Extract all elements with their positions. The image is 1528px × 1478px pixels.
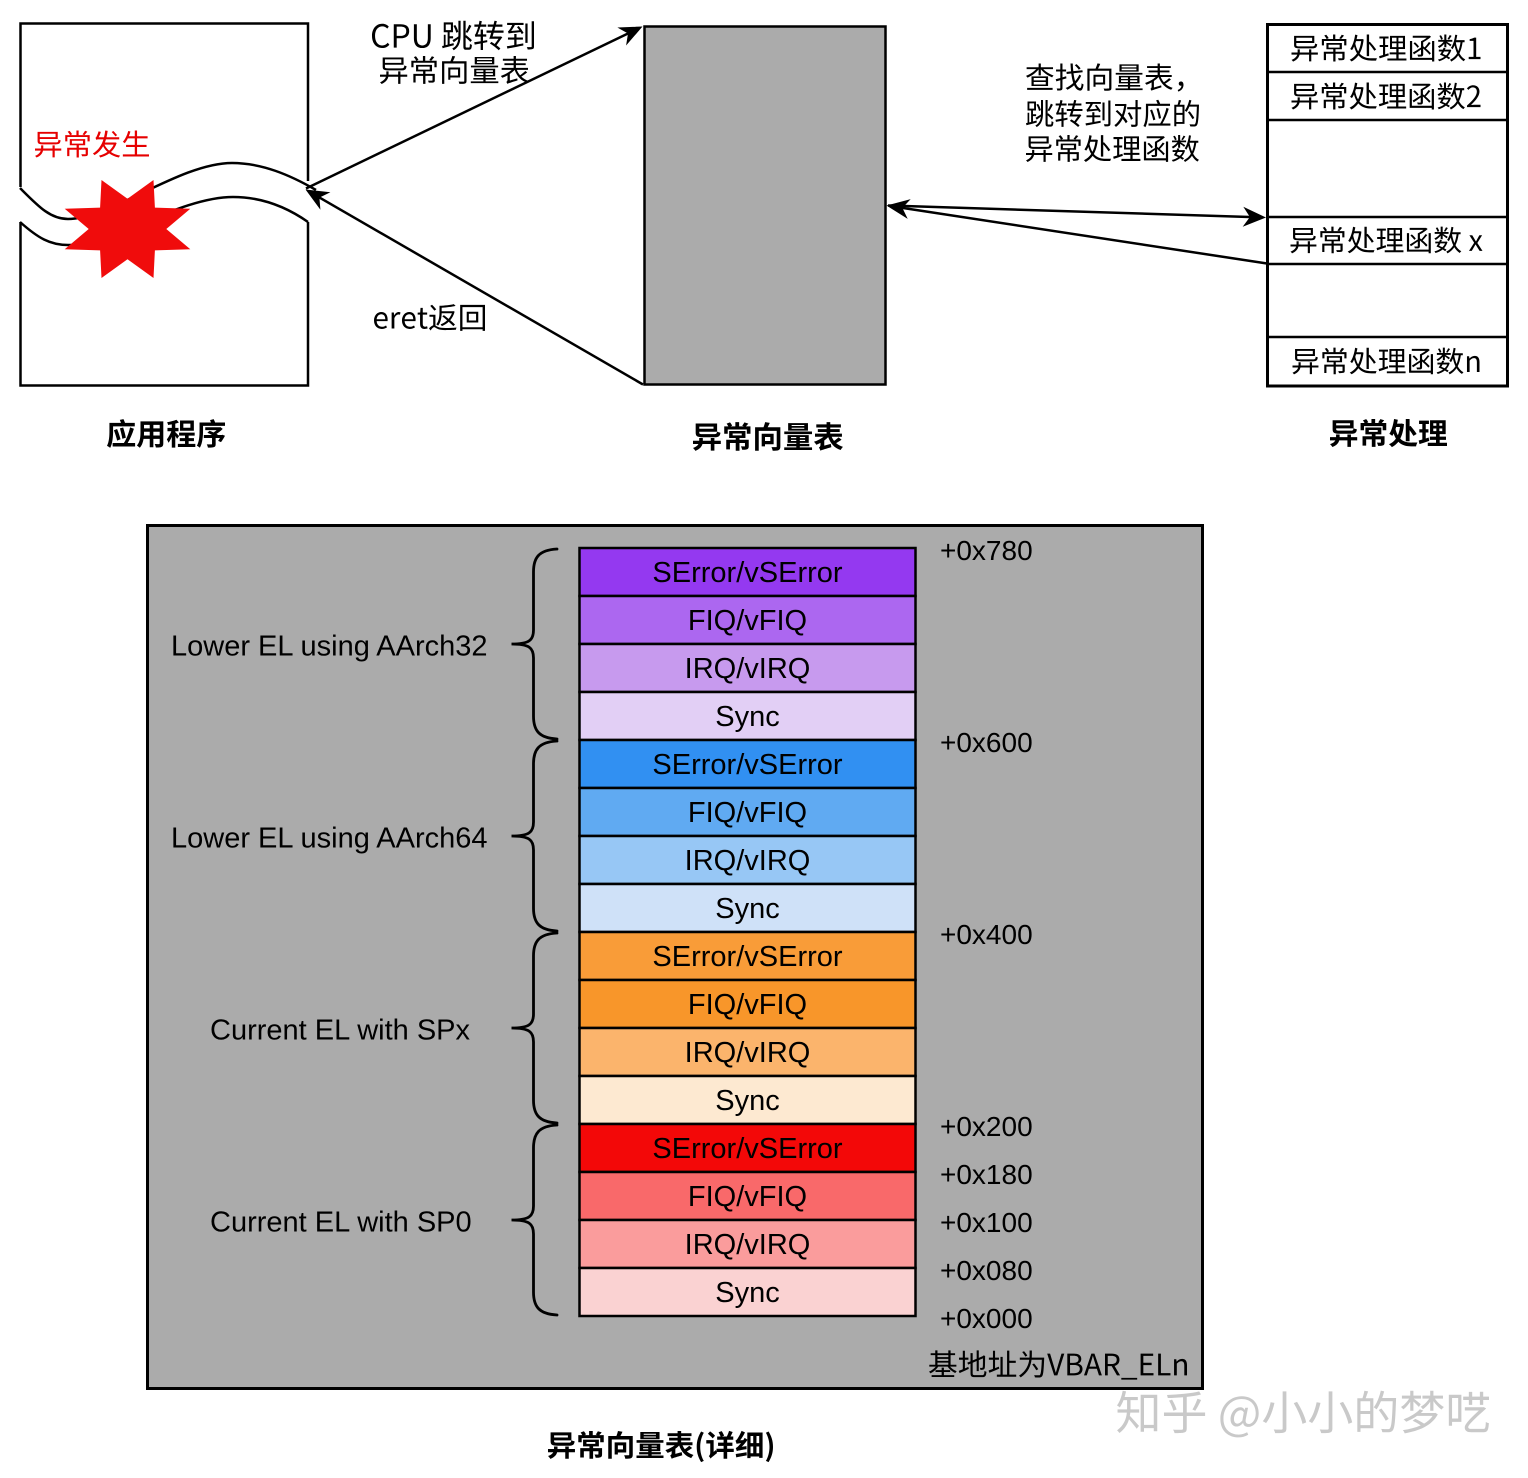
svg-text:+0x100: +0x100 [940, 1207, 1033, 1238]
svg-text:SError/vSError: SError/vSError [652, 557, 842, 589]
svg-text:+0x780: +0x780 [940, 535, 1033, 566]
svg-text:Lower EL using AArch32: Lower EL using AArch32 [171, 630, 488, 662]
svg-text:Sync: Sync [715, 1085, 779, 1117]
svg-text:+0x000: +0x000 [940, 1303, 1033, 1334]
svg-text:+0x200: +0x200 [940, 1111, 1033, 1142]
svg-text:SError/vSError: SError/vSError [652, 749, 842, 781]
svg-text:IRQ/vIRQ: IRQ/vIRQ [685, 1037, 811, 1069]
svg-text:Current EL with SPx: Current EL with SPx [210, 1014, 471, 1046]
svg-text:FIQ/vFIQ: FIQ/vFIQ [688, 605, 807, 637]
svg-text:SError/vSError: SError/vSError [652, 1133, 842, 1165]
svg-text:Sync: Sync [715, 701, 779, 733]
svg-text:+0x400: +0x400 [940, 919, 1033, 950]
svg-text:FIQ/vFIQ: FIQ/vFIQ [688, 989, 807, 1021]
svg-text:+0x180: +0x180 [940, 1159, 1033, 1190]
svg-text:FIQ/vFIQ: FIQ/vFIQ [688, 1181, 807, 1213]
svg-text:+0x600: +0x600 [940, 727, 1033, 758]
svg-text:Current EL with SP0: Current EL with SP0 [210, 1206, 472, 1238]
svg-text:IRQ/vIRQ: IRQ/vIRQ [685, 653, 811, 685]
svg-text:+0x080: +0x080 [940, 1255, 1033, 1286]
svg-text:Sync: Sync [715, 893, 779, 925]
svg-text:FIQ/vFIQ: FIQ/vFIQ [688, 797, 807, 829]
svg-text:Sync: Sync [715, 1277, 779, 1309]
svg-text:IRQ/vIRQ: IRQ/vIRQ [685, 1229, 811, 1261]
svg-text:SError/vSError: SError/vSError [652, 941, 842, 973]
svg-text:IRQ/vIRQ: IRQ/vIRQ [685, 845, 811, 877]
svg-text:Lower EL using AArch64: Lower EL using AArch64 [171, 822, 488, 854]
